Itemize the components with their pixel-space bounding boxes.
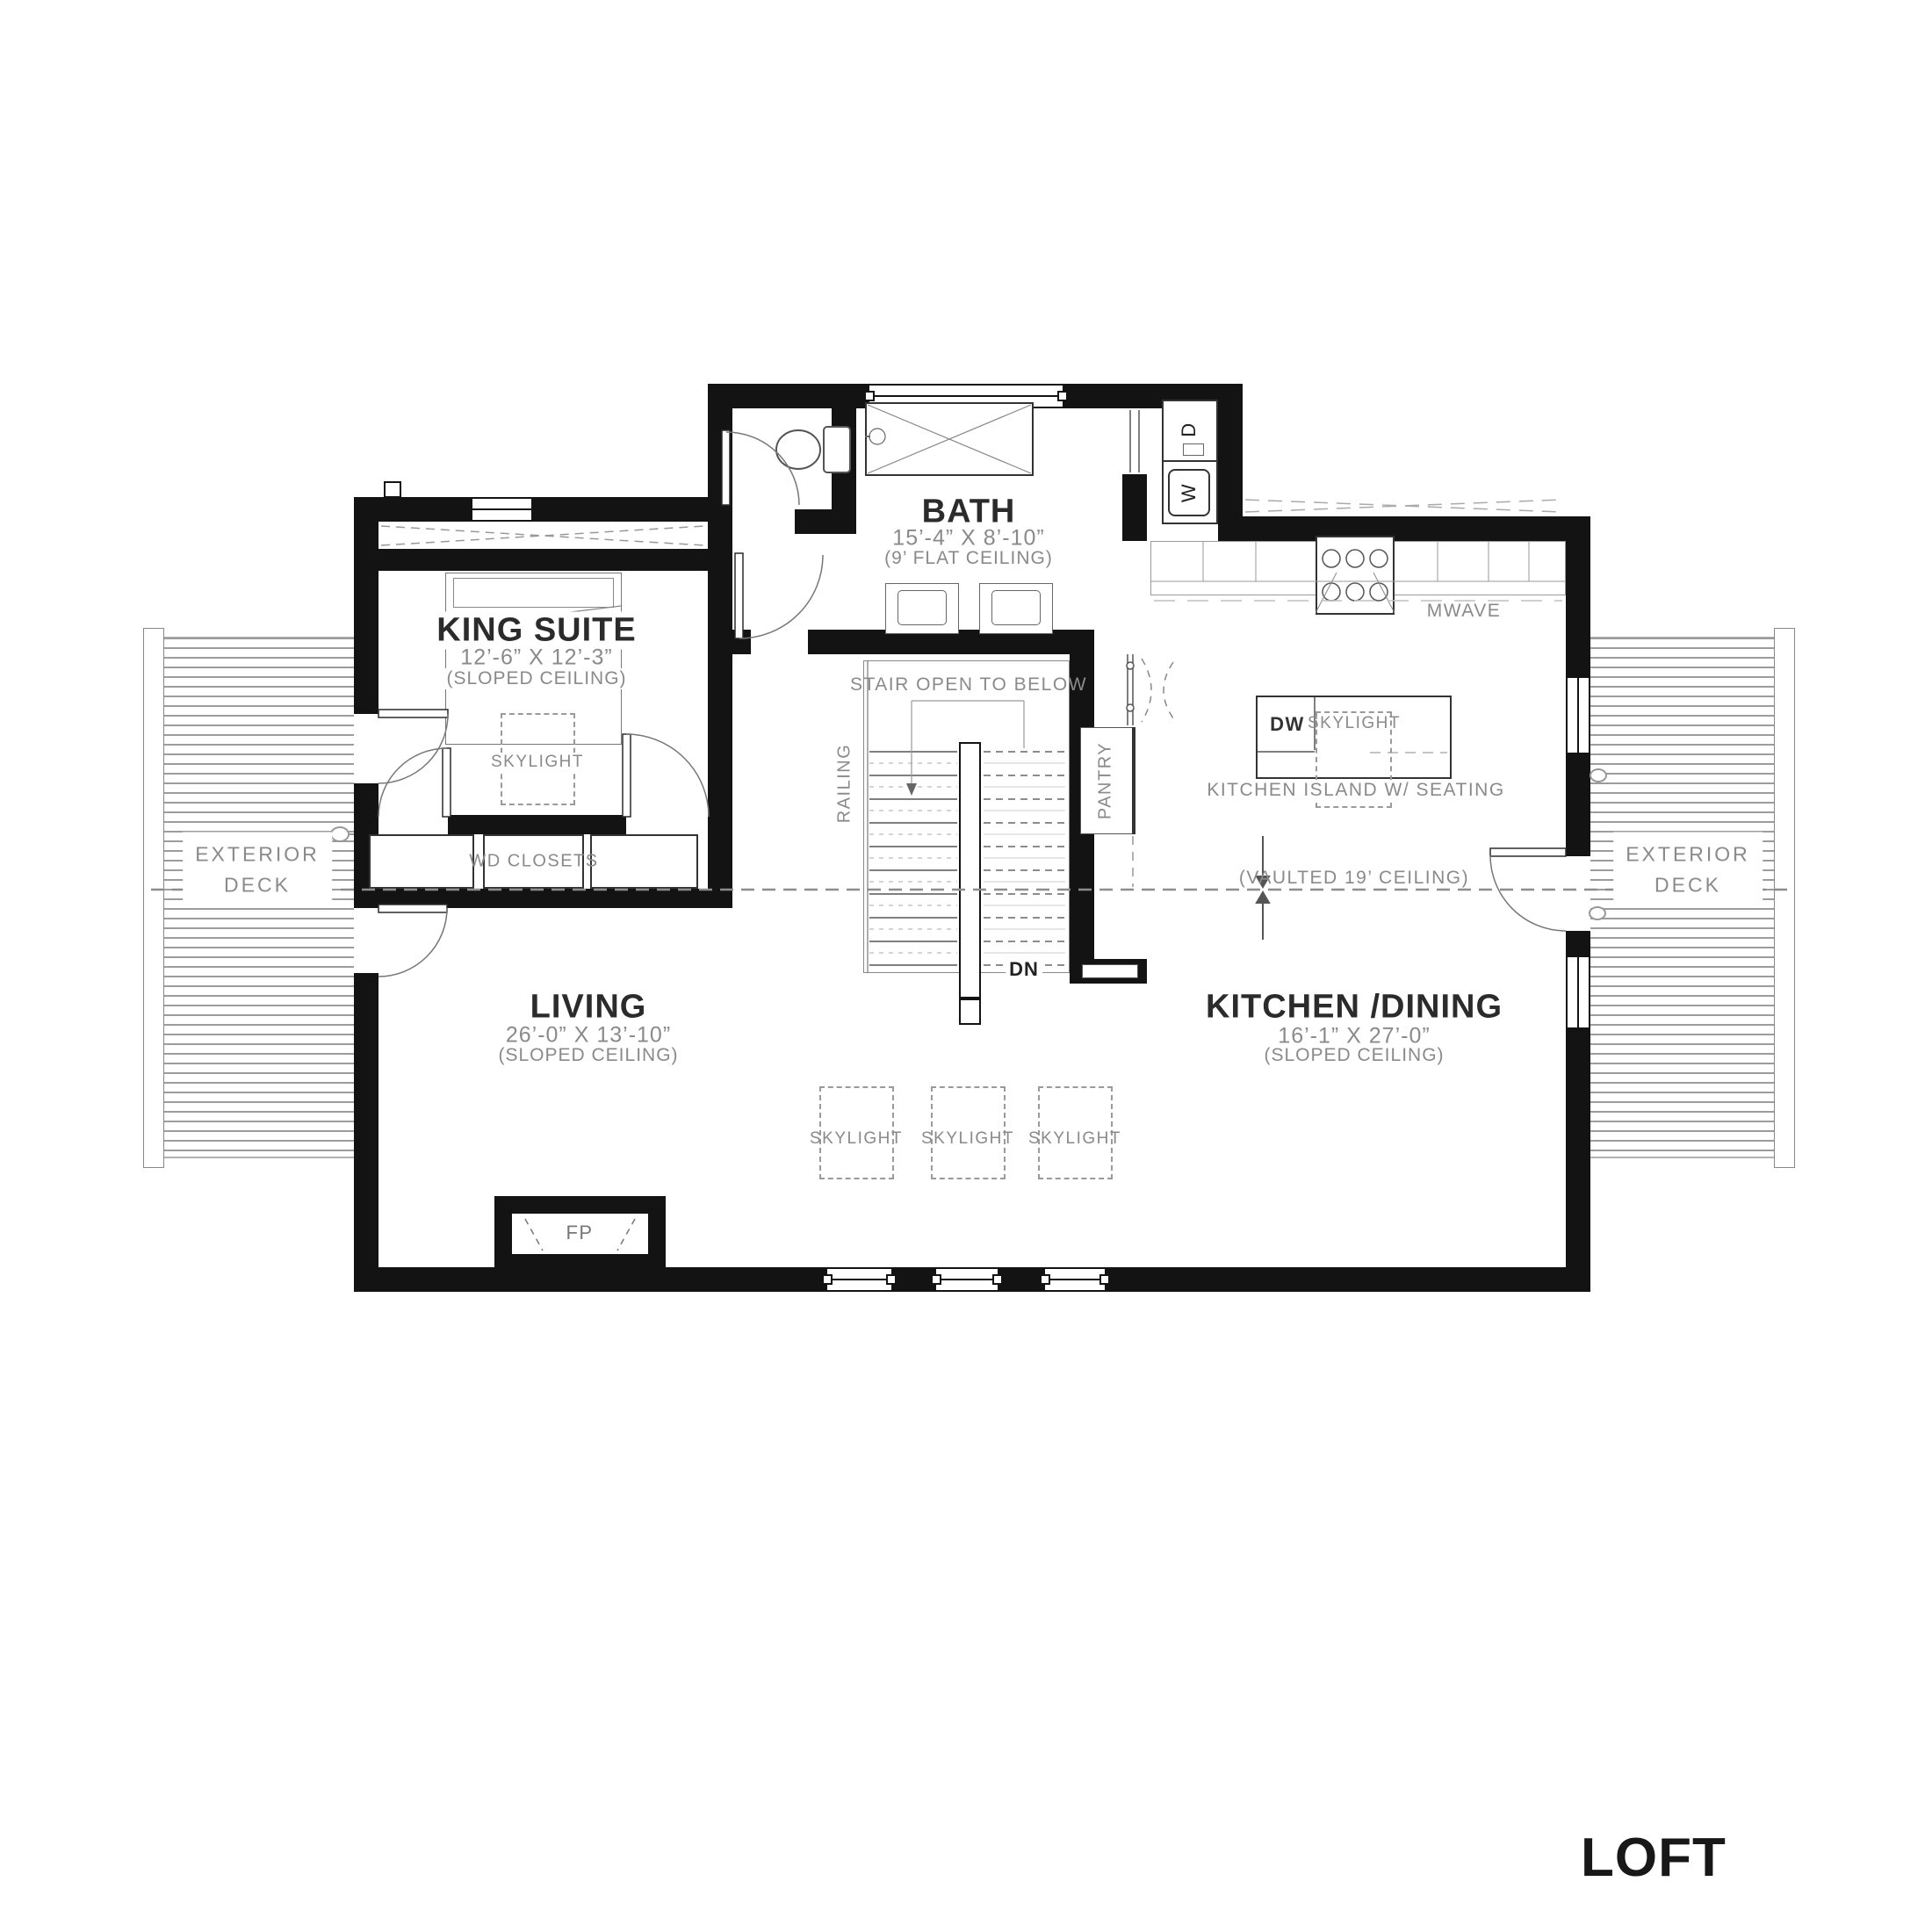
wd-closets-label: WD CLOSETS bbox=[469, 852, 598, 872]
window bbox=[1045, 1267, 1105, 1292]
dishwasher-label: DW bbox=[1270, 713, 1305, 736]
room-ceiling-king-suite: (SLOPED CEILING) bbox=[443, 668, 630, 689]
deck-label-line: DECK bbox=[1626, 869, 1750, 900]
room-dims-king-suite: 12’-6” X 12’-3” bbox=[455, 645, 617, 671]
pocket-door bbox=[1130, 410, 1139, 472]
stair-newel-post bbox=[959, 998, 981, 1025]
mwave-label: MWAVE bbox=[1427, 601, 1502, 622]
deck-left-rim-board bbox=[143, 628, 164, 1168]
wall-segment bbox=[998, 1267, 1045, 1292]
bed-headboard bbox=[453, 578, 614, 608]
wall-segment bbox=[732, 630, 751, 654]
pantry-label: PANTRY bbox=[1096, 742, 1116, 819]
skylight-label: SKYLIGHT bbox=[1308, 714, 1401, 733]
washer-label: W bbox=[1178, 483, 1200, 502]
stair-down-label: DN bbox=[1006, 958, 1042, 981]
window-tick bbox=[931, 1274, 941, 1285]
window-tick bbox=[1057, 391, 1068, 401]
stair-lower-wall-notch bbox=[1082, 964, 1138, 978]
vanity-sink-basin bbox=[898, 590, 947, 625]
room-ceiling-kitchen-dining: (SLOPED CEILING) bbox=[1260, 1045, 1447, 1066]
skylight-label: SKYLIGHT bbox=[1028, 1129, 1121, 1149]
deck-label-line: DECK bbox=[195, 869, 320, 900]
wall-segment bbox=[354, 973, 378, 1292]
window-tick bbox=[886, 1274, 897, 1285]
deck-left-label: EXTERIOR DECK bbox=[183, 833, 332, 907]
closet bbox=[590, 834, 698, 889]
wall-segment bbox=[709, 815, 732, 834]
window-tick bbox=[822, 1274, 833, 1285]
stair-open-label: STAIR OPEN TO BELOW bbox=[850, 674, 1087, 696]
pantry-bifold-doors bbox=[1127, 654, 1173, 725]
washer-dryer-divider bbox=[1162, 460, 1218, 462]
kitchen-island-label: KITCHEN ISLAND W/ SEATING bbox=[1207, 780, 1504, 801]
railing-label: RAILING bbox=[835, 744, 855, 824]
window bbox=[1566, 957, 1590, 1027]
deck-right-rim-board bbox=[1774, 628, 1795, 1168]
closet bbox=[369, 834, 474, 889]
range-cooktop bbox=[1316, 536, 1395, 615]
shower bbox=[865, 402, 1034, 476]
wall-segment bbox=[891, 1267, 936, 1292]
skylight-label: SKYLIGHT bbox=[921, 1129, 1014, 1149]
deck-right-label: EXTERIOR DECK bbox=[1613, 833, 1763, 907]
wall-segment bbox=[1566, 931, 1590, 957]
page-title: LOFT bbox=[1581, 1827, 1727, 1889]
window-tick bbox=[864, 391, 875, 401]
deck-label-line: EXTERIOR bbox=[1626, 840, 1750, 870]
dryer-label: D bbox=[1178, 422, 1200, 436]
stair-center-divider bbox=[959, 742, 981, 998]
window bbox=[472, 497, 531, 522]
wall-segment bbox=[795, 509, 856, 534]
window bbox=[827, 1267, 891, 1292]
deck-label-line: EXTERIOR bbox=[195, 840, 320, 870]
wall-segment bbox=[1243, 516, 1590, 541]
window bbox=[1566, 678, 1590, 753]
window bbox=[936, 1267, 998, 1292]
wall-segment bbox=[1105, 1267, 1590, 1292]
wall-segment bbox=[1122, 474, 1147, 541]
room-title-living: LIVING bbox=[523, 989, 654, 1027]
window-tick bbox=[1040, 1274, 1050, 1285]
room-title-king-suite: KING SUITE bbox=[429, 612, 643, 650]
fireplace-label: FP bbox=[566, 1222, 593, 1244]
wall-segment bbox=[354, 889, 732, 908]
dryer-detergent-box bbox=[1183, 443, 1204, 456]
wall-segment bbox=[1566, 541, 1590, 678]
wall-segment bbox=[354, 497, 378, 714]
wall-segment bbox=[1566, 1027, 1590, 1292]
window-tick bbox=[1099, 1274, 1110, 1285]
skylight-label: SKYLIGHT bbox=[810, 1129, 903, 1149]
window-tick bbox=[992, 1274, 1003, 1285]
room-ceiling-bath: (9’ FLAT CEILING) bbox=[881, 548, 1056, 569]
skylight-label: SKYLIGHT bbox=[491, 753, 584, 772]
closet-rail-x bbox=[381, 526, 704, 545]
wall-segment bbox=[448, 815, 626, 834]
room-title-kitchen-dining: KITCHEN /DINING bbox=[1199, 989, 1510, 1027]
pantry-counter-edge bbox=[1132, 727, 1135, 834]
ceiling-break-lines bbox=[1245, 500, 1561, 512]
vaulted-ceiling-label: (VAULTED 19’ CEILING) bbox=[1239, 868, 1469, 889]
roof-vent bbox=[385, 482, 400, 497]
room-ceiling-living: (SLOPED CEILING) bbox=[494, 1045, 681, 1066]
floor-plan-canvas: KING SUITE 12’-6” X 12’-3” (SLOPED CEILI… bbox=[0, 0, 1932, 1932]
wall-segment bbox=[354, 549, 708, 571]
wall-segment bbox=[531, 497, 708, 522]
vanity-sink-basin bbox=[991, 590, 1041, 625]
wall-segment bbox=[1218, 384, 1243, 541]
wall-segment bbox=[1566, 753, 1590, 856]
